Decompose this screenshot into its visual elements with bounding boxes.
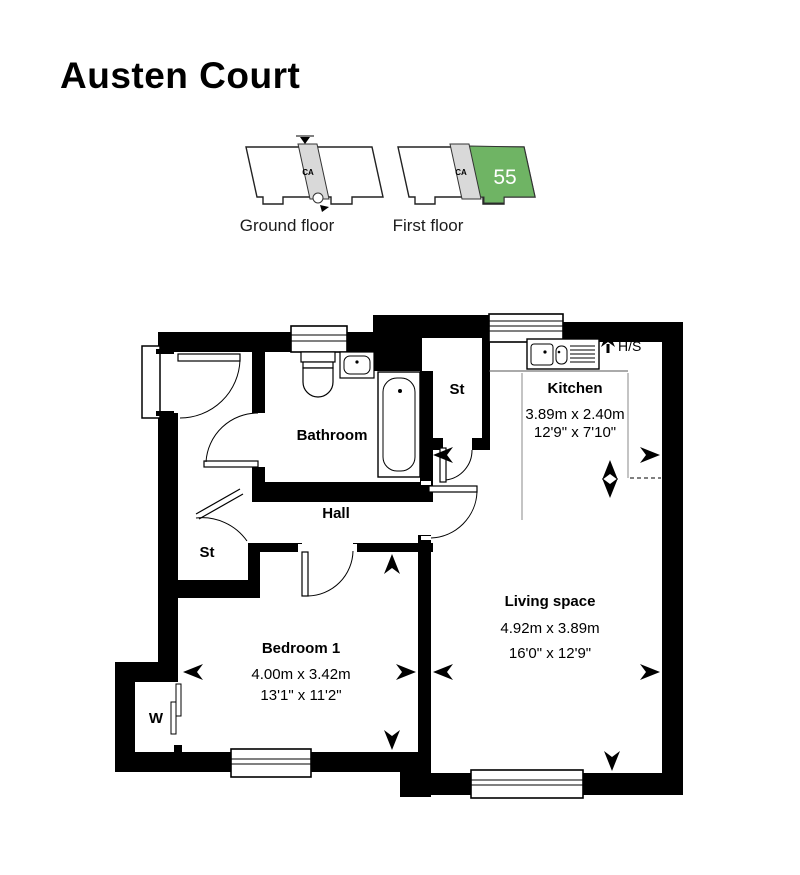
kitchen-labels: Kitchen 3.89m x 2.40m 12'9" x 7'10" <box>525 380 624 441</box>
ground-floor-ca-label: CA <box>302 168 314 177</box>
wardrobe-label: W <box>149 710 164 727</box>
bedroom-metric-dimension: 4.00m x 3.42m <box>251 666 350 683</box>
kitchen-sink-icon <box>527 339 599 369</box>
bathroom-label: Bathroom <box>297 427 368 444</box>
unit-number-label: 55 <box>493 166 516 189</box>
stair-core-icon <box>313 193 323 203</box>
ground-floor-label: Ground floor <box>240 216 335 235</box>
bedroom-window <box>231 749 311 777</box>
kitchen-metric-dimension: 3.89m x 2.40m <box>525 406 624 423</box>
living-width-left-arrow-icon <box>433 664 453 680</box>
bedroom-imperial-dimension: 13'1" x 11'2" <box>260 687 341 704</box>
first-floor-miniplan: CA 55 First floor <box>393 144 535 235</box>
floorplan-page: Austen Court CA Ground floor CA 55 First… <box>0 0 800 875</box>
kitchen-imperial-dimension: 12'9" x 7'10" <box>534 424 616 441</box>
storage-top-label: St <box>450 381 465 398</box>
bedroom-width-right-arrow-icon <box>396 664 416 680</box>
entrance-door <box>142 346 240 418</box>
bedroom-width-left-arrow-icon <box>183 664 203 680</box>
kitchen-label: Kitchen <box>547 380 602 397</box>
bedroom-depth-up-arrow-icon <box>384 554 400 574</box>
living-imperial-dimension: 16'0" x 12'9" <box>509 645 591 662</box>
floorplan-canvas: Austen Court CA Ground floor CA 55 First… <box>0 0 800 875</box>
bedroom-door <box>302 551 353 596</box>
bathroom-door <box>204 413 258 467</box>
bedroom-label: Bedroom 1 <box>262 640 340 657</box>
first-floor-label: First floor <box>393 216 464 235</box>
ground-floor-miniplan: CA Ground floor <box>240 136 383 235</box>
entrance-arrow-bottom-icon <box>320 205 329 212</box>
entrance-arrow-top-icon <box>300 137 310 144</box>
page-title: Austen Court <box>60 55 300 96</box>
kitchen-width-right-arrow-icon <box>640 447 660 463</box>
basin-icon <box>340 352 374 378</box>
bathroom-window <box>291 326 347 352</box>
wardrobe-doors-icon <box>171 684 181 734</box>
kitchen-depth-up-arrow-icon <box>602 460 618 480</box>
hall-label: Hall <box>322 505 350 522</box>
living-room-door <box>429 486 477 538</box>
living-metric-dimension: 4.92m x 3.89m <box>500 620 599 637</box>
toilet-icon <box>301 352 335 397</box>
storage-left-door <box>196 489 247 541</box>
living-depth-down-arrow-icon <box>604 751 620 771</box>
living-width-right-arrow-icon <box>640 664 660 680</box>
hs-label: H/S <box>618 338 641 354</box>
kitchen-depth-down-arrow-icon <box>602 478 618 498</box>
kitchen-window <box>489 314 563 342</box>
living-label: Living space <box>505 593 596 610</box>
storage-left-label: St <box>200 544 215 561</box>
bedroom-depth-down-arrow-icon <box>384 730 400 750</box>
living-window <box>471 770 583 798</box>
living-labels: Living space 4.92m x 3.89m 16'0" x 12'9" <box>500 593 599 662</box>
bedroom-labels: Bedroom 1 4.00m x 3.42m 13'1" x 11'2" <box>251 640 350 704</box>
first-floor-ca-label: CA <box>455 168 467 177</box>
bathtub-icon <box>378 372 420 477</box>
